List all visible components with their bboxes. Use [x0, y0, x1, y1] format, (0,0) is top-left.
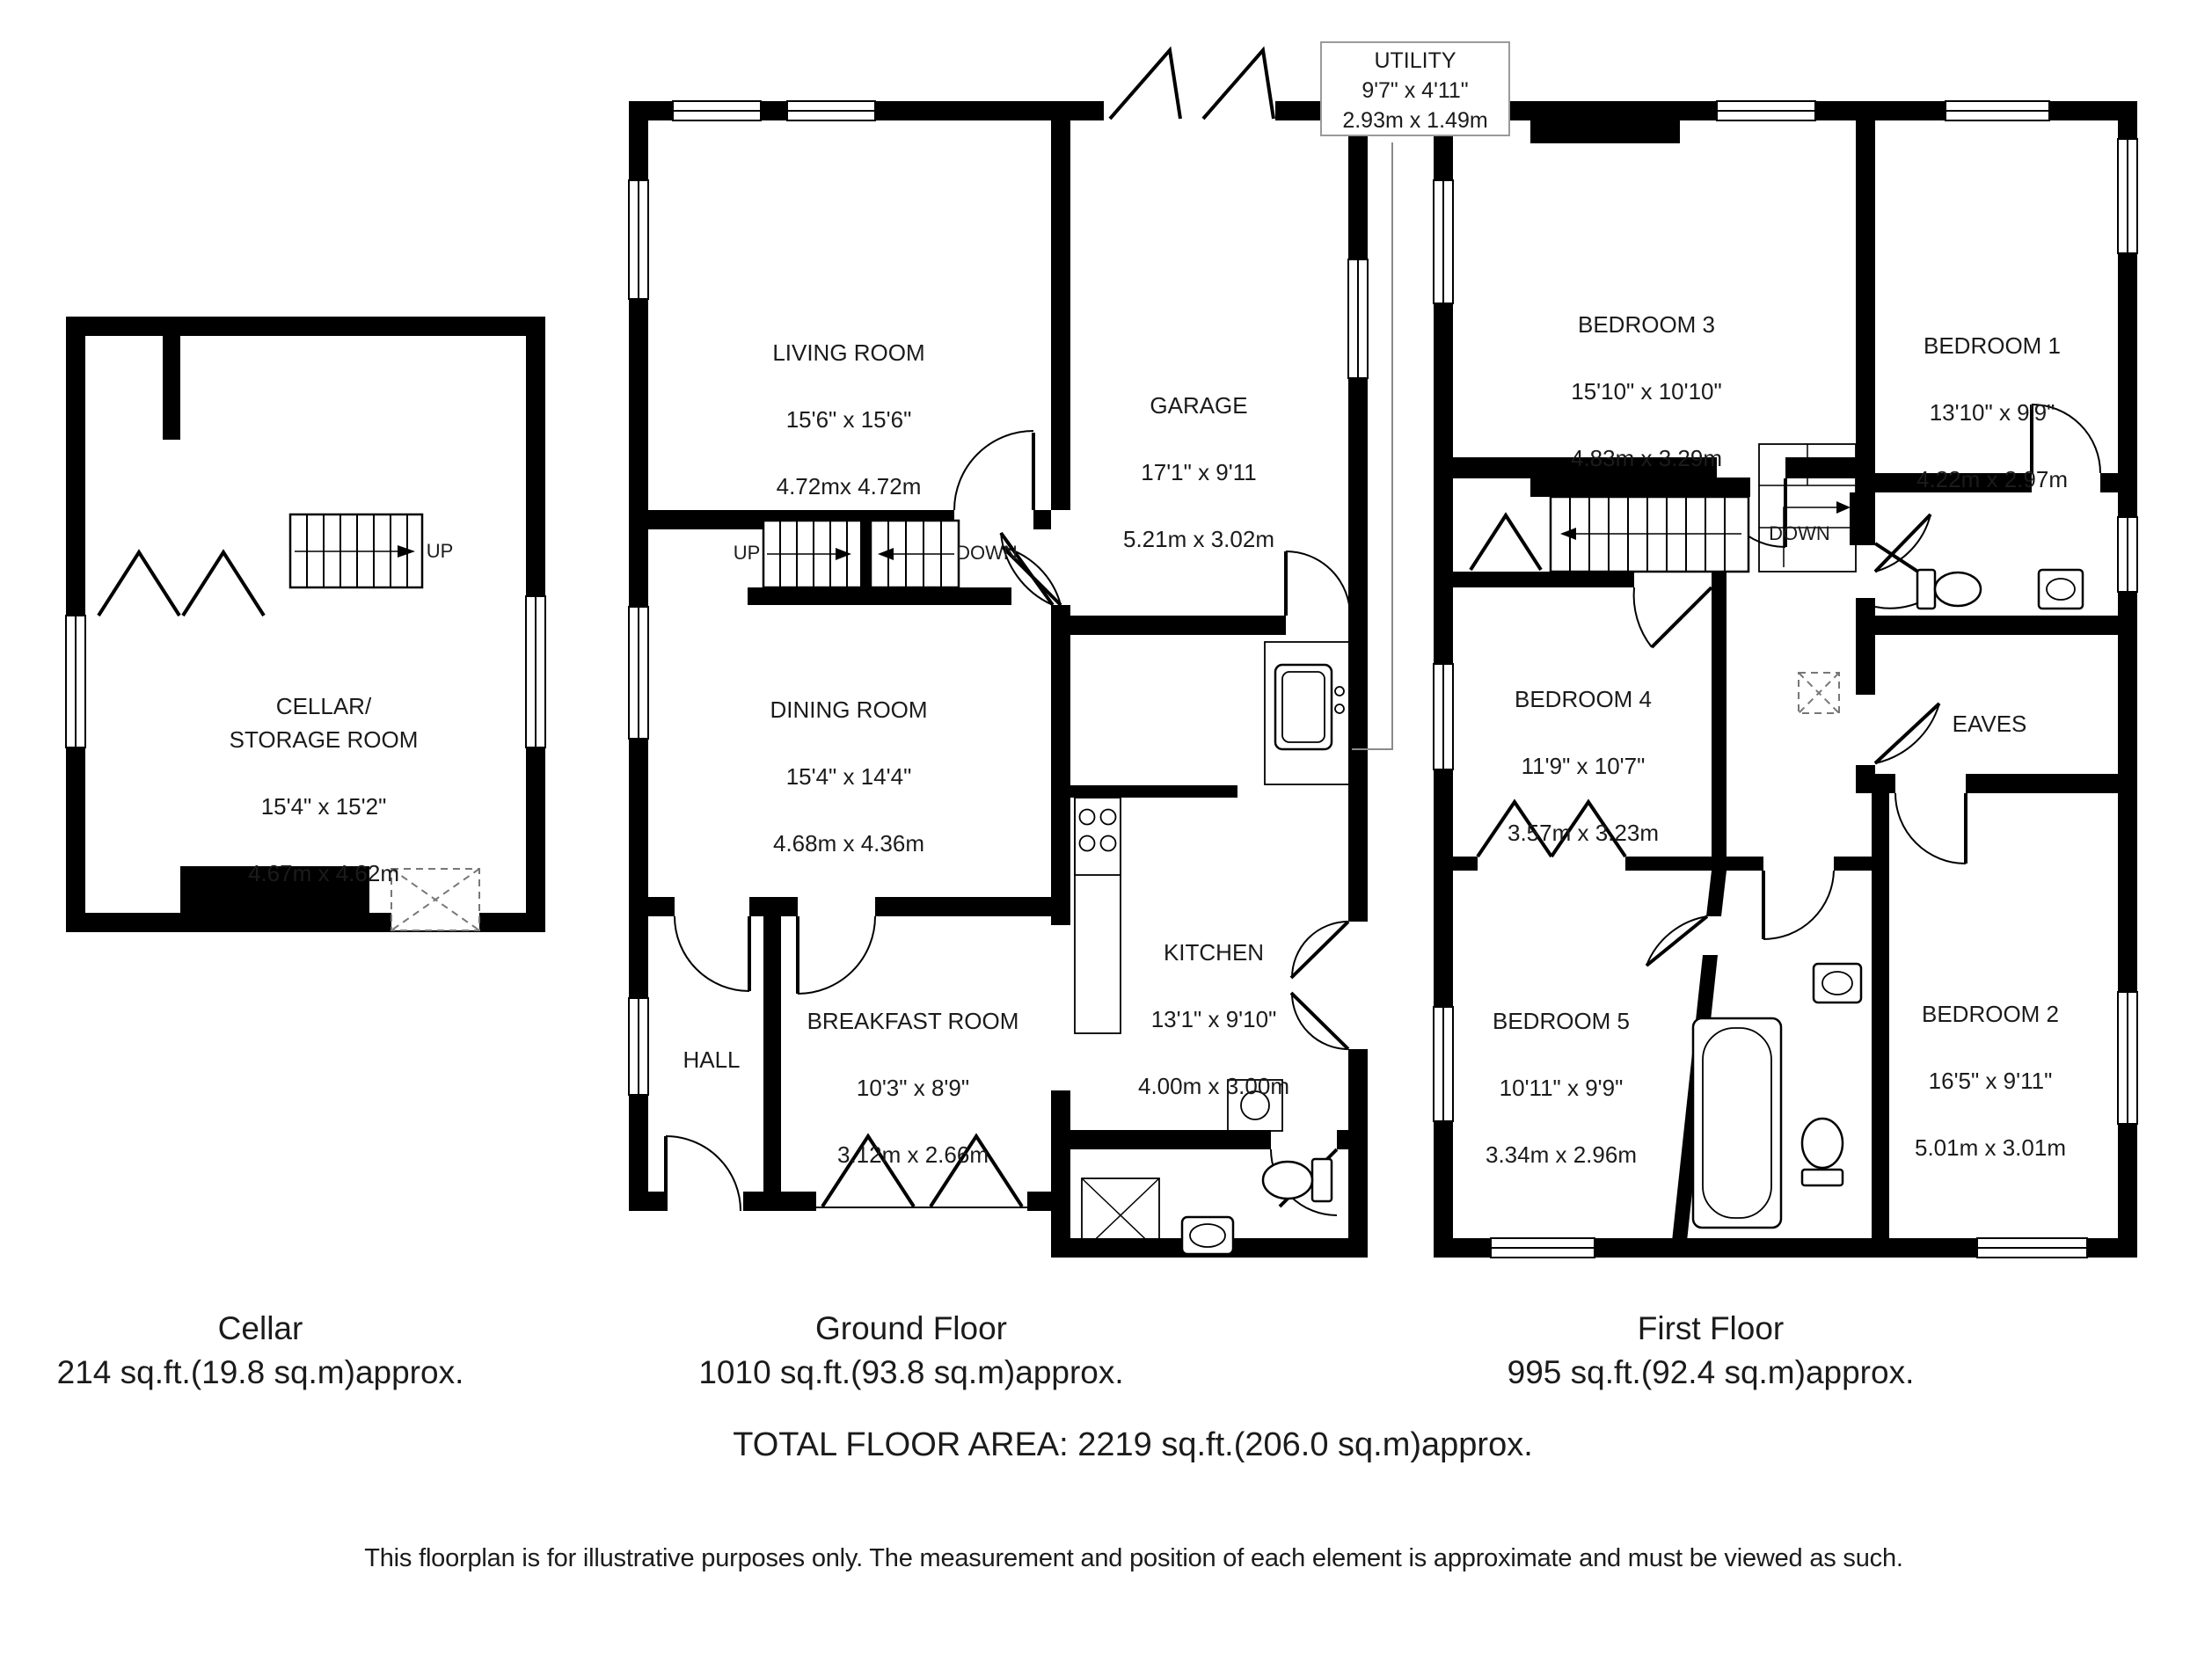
room-label-breakfast-room: BREAKFAST ROOM 10'3" x 8'9" 3.12m x 2.66…: [772, 971, 1054, 1205]
room-name: BEDROOM 5: [1429, 1004, 1693, 1038]
room-label-living-room: LIVING ROOM 15'6" x 15'6" 4.72mx 4.72m: [699, 303, 998, 536]
room-name: UTILITY: [1331, 46, 1500, 76]
room-dim-metric: 4.68m x 4.36m: [699, 827, 998, 860]
room-label-dining-room: DINING ROOM 15'4" x 14'4" 4.68m x 4.36m: [699, 660, 998, 893]
cupboard-door-icon: [1471, 515, 1541, 570]
room-dim-metric: 2.93m x 1.49m: [1331, 106, 1500, 135]
room-label-hall: HALL: [641, 1010, 782, 1110]
door-arc: [675, 916, 749, 991]
stairs-up-label: UP: [427, 542, 454, 561]
toilet-icon: [1802, 1119, 1843, 1185]
garage-door-icon: [1104, 50, 1275, 120]
room-dim-imperial: 9'7" x 4'11": [1331, 76, 1500, 106]
stairs-down-label: DOWN: [1769, 524, 1830, 543]
room-name: CELLAR/ STORAGE ROOM: [165, 689, 482, 756]
room-dim-metric: 3.34m x 2.96m: [1429, 1138, 1693, 1171]
room-name: KITCHEN: [1082, 936, 1346, 969]
room-name: BEDROOM 4: [1451, 682, 1715, 716]
floorplan-canvas: CELLAR/ STORAGE ROOM 15'4" x 15'2" 4.67m…: [0, 0, 2212, 1677]
room-dim-metric: 4.67m x 4.62m: [165, 857, 482, 890]
utility-label-box: UTILITY 9'7" x 4'11" 2.93m x 1.49m: [1320, 41, 1510, 136]
room-dim-metric: 4.22m x 2.97m: [1860, 463, 2124, 496]
door-arc: [1634, 587, 1712, 647]
total-floor-area: TOTAL FLOOR AREA: 2219 sq.ft.(206.0 sq.m…: [733, 1426, 1533, 1464]
floor-area: 995 sq.ft.(92.4 sq.m)approx.: [1508, 1351, 1915, 1395]
room-dim-metric: 5.01m x 3.01m: [1858, 1131, 2122, 1164]
toilet-icon: [1263, 1159, 1332, 1201]
room-name: BEDROOM 2: [1858, 997, 2122, 1031]
floor-title: First Floor: [1508, 1307, 1915, 1351]
loft-hatch: [1799, 673, 1839, 713]
room-label-eaves: EAVES: [1902, 674, 2077, 774]
room-dim-imperial: 10'3" x 8'9": [772, 1071, 1054, 1105]
room-dim-imperial: 13'1" x 9'10": [1082, 1003, 1346, 1036]
room-dim-imperial: 15'4" x 14'4": [699, 760, 998, 793]
cellar-caption: Cellar 214 sq.ft.(19.8 sq.m)approx.: [57, 1307, 464, 1395]
room-label-garage: GARAGE 17'1" x 9'11 5.21m x 3.02m: [1067, 355, 1331, 589]
front-door: [666, 1136, 743, 1211]
stairs-up-label: UP: [734, 543, 761, 563]
room-label-bedroom-5: BEDROOM 5 10'11" x 9'9" 3.34m x 2.96m: [1429, 971, 1693, 1205]
room-name: DINING ROOM: [699, 693, 998, 726]
room-name: BEDROOM 1: [1860, 329, 2124, 362]
room-name: GARAGE: [1067, 389, 1331, 422]
room-dim-metric: 4.00m x 3.00m: [1082, 1069, 1346, 1103]
room-dim-imperial: 11'9" x 10'7": [1451, 749, 1715, 783]
bathtub-icon: [1693, 1018, 1781, 1228]
room-dim-imperial: 15'6" x 15'6": [699, 403, 998, 436]
room-label-bedroom-2: BEDROOM 2 16'5" x 9'11" 5.01m x 3.01m: [1858, 964, 2122, 1198]
room-dim-metric: 4.72mx 4.72m: [699, 470, 998, 503]
floor-area: 214 sq.ft.(19.8 sq.m)approx.: [57, 1351, 464, 1395]
room-name: BREAKFAST ROOM: [772, 1004, 1054, 1038]
room-dim-metric: 3.12m x 2.66m: [772, 1138, 1054, 1171]
room-label-cellar-storage: CELLAR/ STORAGE ROOM 15'4" x 15'2" 4.67m…: [165, 656, 482, 923]
room-label-bedroom-3: BEDROOM 3 15'10" x 10'10" 4.83m x 3.29m: [1497, 274, 1796, 508]
floor-title: Cellar: [57, 1307, 464, 1351]
door-arc: [1646, 916, 1707, 966]
ground-floor-caption: Ground Floor 1010 sq.ft.(93.8 sq.m)appro…: [698, 1307, 1123, 1395]
room-dim-imperial: 17'1" x 9'11: [1067, 456, 1331, 489]
stairs-down-label: DOWN: [956, 543, 1018, 563]
double-door-icon: [99, 552, 264, 616]
cellar-stairs: [290, 514, 422, 587]
door-arc: [1763, 871, 1834, 939]
room-dim-imperial: 16'5" x 9'11": [1858, 1064, 2122, 1097]
sink-icon: [2039, 570, 2083, 609]
room-dim-metric: 5.21m x 3.02m: [1067, 522, 1331, 556]
room-dim-metric: 4.83m x 3.29m: [1497, 441, 1796, 475]
room-name: EAVES: [1902, 707, 2077, 740]
room-name: LIVING ROOM: [699, 336, 998, 369]
utility-sink-icon: [1265, 642, 1350, 784]
door-arc: [1895, 793, 1966, 864]
sink-icon: [1182, 1217, 1233, 1254]
floor-title: Ground Floor: [698, 1307, 1123, 1351]
room-dim-metric: 3.57m x 3.23m: [1451, 816, 1715, 849]
room-dim-imperial: 15'4" x 15'2": [165, 790, 482, 823]
window: [1348, 259, 1368, 378]
room-label-bedroom-4: BEDROOM 4 11'9" x 10'7" 3.57m x 3.23m: [1451, 649, 1715, 883]
room-dim-imperial: 15'10" x 10'10": [1497, 375, 1796, 408]
sink-icon: [1814, 964, 1861, 1003]
room-label-bedroom-1: BEDROOM 1 13'10" x 9'9" 4.22m x 2.97m: [1860, 295, 2124, 529]
room-name: HALL: [641, 1043, 782, 1076]
room-dim-imperial: 13'10" x 9'9": [1860, 396, 2124, 429]
toilet-icon: [1917, 570, 1981, 609]
disclaimer-text: This floorplan is for illustrative purpo…: [364, 1544, 1903, 1573]
room-name: BEDROOM 3: [1497, 308, 1796, 341]
first-floor-caption: First Floor 995 sq.ft.(92.4 sq.m)approx.: [1508, 1307, 1915, 1395]
room-dim-imperial: 10'11" x 9'9": [1429, 1071, 1693, 1105]
floor-area: 1010 sq.ft.(93.8 sq.m)approx.: [698, 1351, 1123, 1395]
room-label-kitchen: KITCHEN 13'1" x 9'10" 4.00m x 3.00m: [1082, 902, 1346, 1136]
